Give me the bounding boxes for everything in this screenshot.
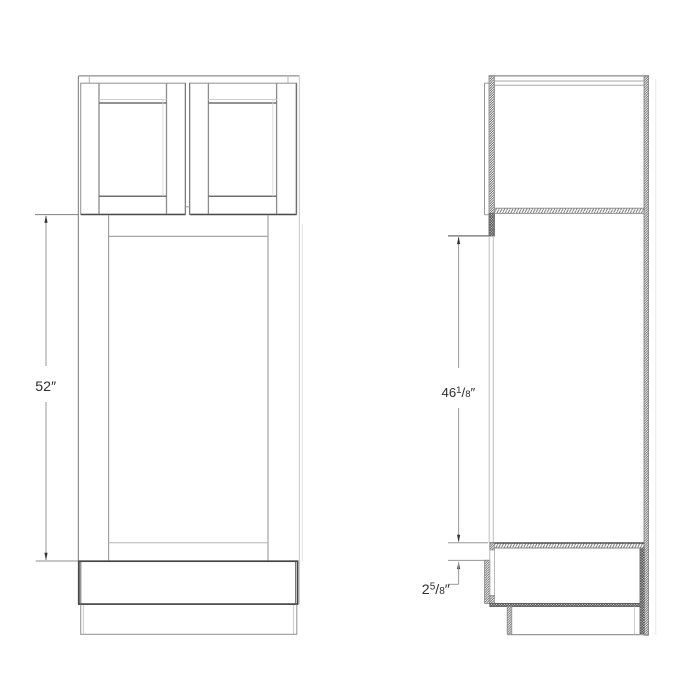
svg-text:461/8″: 461/8″	[442, 385, 476, 400]
svg-text:52″: 52″	[35, 379, 56, 395]
svg-text:25/8″: 25/8″	[422, 582, 450, 599]
